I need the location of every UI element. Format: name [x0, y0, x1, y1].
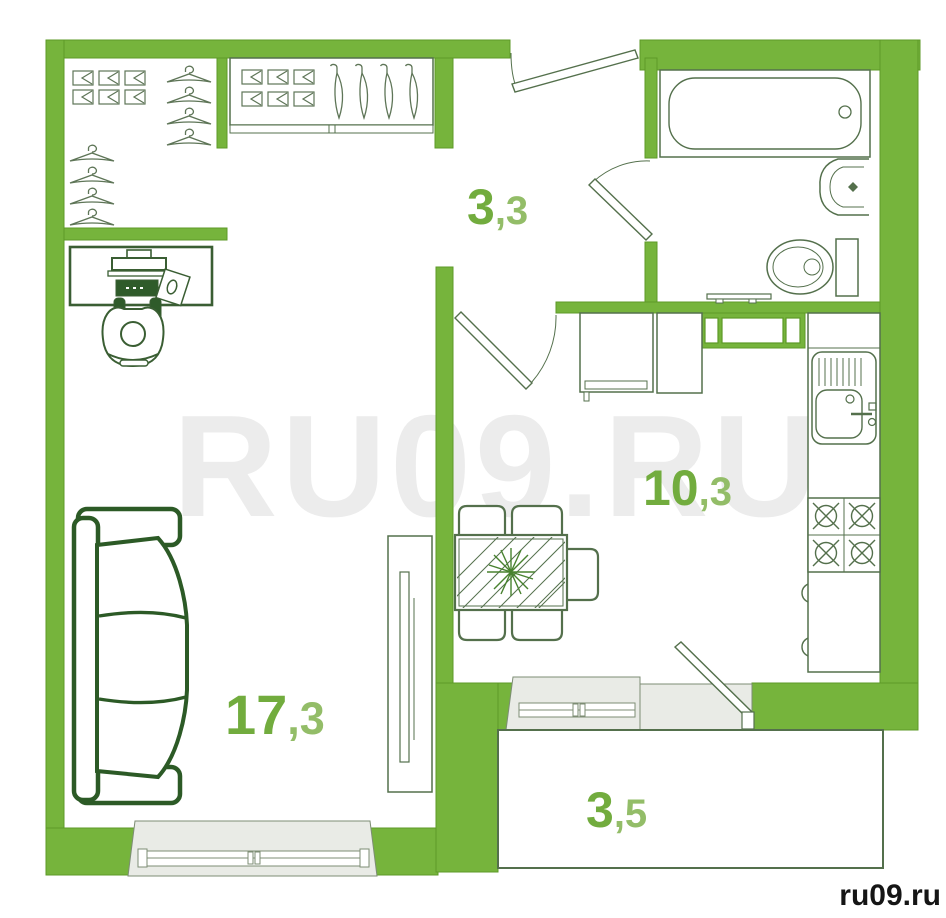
stove-icon — [808, 498, 880, 572]
window-icon — [506, 677, 640, 730]
tv-stand-icon — [388, 536, 432, 792]
site-credit-text: ru09.ru — [839, 879, 941, 912]
chair-icon — [459, 608, 505, 640]
chair-icon — [512, 506, 562, 537]
wall-desk-niche — [64, 228, 227, 240]
wall-top-left — [46, 40, 510, 58]
wall-left — [46, 40, 64, 875]
floor-plan: RU09.RU — [0, 0, 946, 918]
fridge-icon — [580, 313, 653, 401]
kitchen-cabinet — [657, 313, 702, 393]
wall-balcony-column — [436, 683, 498, 872]
wardrobe-icon — [230, 58, 433, 133]
wall-bathroom-left-top — [645, 58, 657, 158]
wall-top-right — [640, 40, 920, 70]
toilet-icon — [767, 239, 858, 296]
kitchen-counter — [802, 313, 880, 672]
chair-icon — [566, 549, 598, 600]
wall-closet-right — [435, 58, 453, 148]
balcony-outline — [498, 730, 883, 868]
room-label-living-room: 17,3 — [225, 683, 325, 746]
bathtub-icon — [660, 70, 870, 157]
chair-icon — [512, 608, 562, 640]
wall-hall-kitchen — [556, 302, 880, 313]
washbasin-icon — [820, 159, 869, 215]
table-decor-starburst — [487, 548, 535, 596]
floor-plan-canvas: RU09.RU — [0, 0, 946, 918]
sofa-icon — [74, 509, 187, 803]
wall-closet-divider — [217, 58, 227, 148]
wall-kitchen-bottom-right — [752, 683, 918, 730]
wall-right — [880, 40, 918, 730]
chair-icon — [459, 506, 505, 537]
wall-living-hall — [436, 267, 453, 683]
kitchen-sink-icon — [812, 352, 876, 444]
window-icon — [128, 821, 377, 876]
